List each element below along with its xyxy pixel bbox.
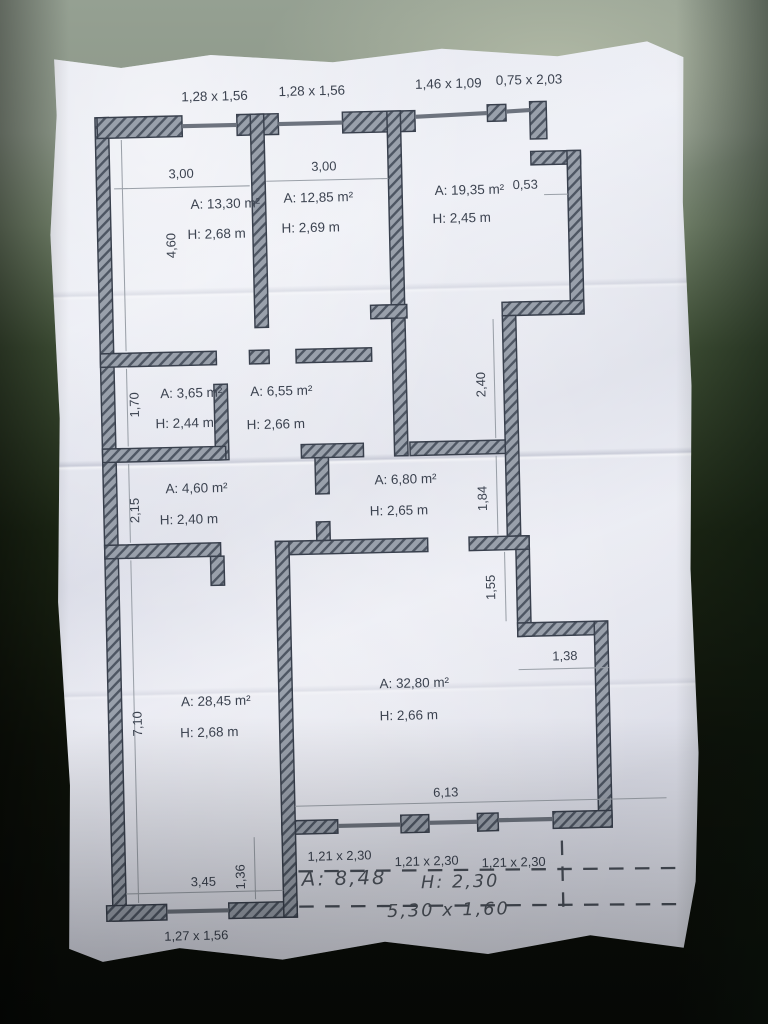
bottom-window-label: 1,21 x 2,30 <box>481 854 545 870</box>
handwritten-balcony-area: A: 8,48 <box>299 866 386 891</box>
dim-7-10: 7,10 <box>130 711 146 737</box>
room-6-80-area: A: 6,80 m² <box>374 471 437 487</box>
room-3-65-height: H: 2,44 m <box>155 415 214 431</box>
room-13-30-area: A: 13,30 m² <box>190 195 260 212</box>
dim-6-13: 6,13 <box>433 784 459 800</box>
room-19-35-area: A: 19,35 m² <box>434 181 504 198</box>
dim-1-84: 1,84 <box>474 486 490 512</box>
photo-of-floor-plan: 1,28 x 1,56 1,28 x 1,56 1,46 x 1,09 0,75… <box>0 0 768 1024</box>
dim-1-38: 1,38 <box>552 648 578 664</box>
room-4-60-height: H: 2,40 m <box>160 511 219 527</box>
room-28-45-area: A: 28,45 m² <box>181 693 251 710</box>
room-19-35-height: H: 2,45 m <box>432 210 491 226</box>
top-window-label: 1,28 x 1,56 <box>181 88 248 105</box>
room-4-60-area: A: 4,60 m² <box>165 480 228 496</box>
room1-width-dim: 3,00 <box>168 166 194 182</box>
room-12-85-area: A: 12,85 m² <box>283 189 353 206</box>
dim-1-55: 1,55 <box>483 575 499 601</box>
room-32-80-height: H: 2,66 m <box>379 707 438 723</box>
room-13-30-height: H: 2,68 m <box>187 226 246 242</box>
room-3-65-area: A: 3,65 m² <box>160 385 223 401</box>
room-6-55-area: A: 6,55 m² <box>250 383 313 399</box>
top-window-label: 1,28 x 1,56 <box>278 83 345 100</box>
dim-1-70: 1,70 <box>126 392 142 418</box>
handwritten-notes: A: 8,48 H: 2,30 5,30 x 1,60 <box>299 863 510 924</box>
room-12-85-height: H: 2,69 m <box>281 219 340 235</box>
room2-width-dim: 3,00 <box>311 158 337 174</box>
dim-1-36: 1,36 <box>232 864 248 890</box>
dim-4-60: 4,60 <box>163 233 179 259</box>
dim-3-45: 3,45 <box>191 874 217 890</box>
paper-sheet: 1,28 x 1,56 1,28 x 1,56 1,46 x 1,09 0,75… <box>44 37 707 969</box>
dim-2-40: 2,40 <box>473 372 489 398</box>
top-door-label: 0,75 x 2,03 <box>496 71 563 88</box>
handwritten-balcony-height: H: 2,30 <box>421 872 500 894</box>
top-opening-labels: 1,28 x 1,56 1,28 x 1,56 1,46 x 1,09 0,75… <box>181 71 563 104</box>
floor-plan-svg: 1,28 x 1,56 1,28 x 1,56 1,46 x 1,09 0,75… <box>44 37 707 969</box>
handwritten-balcony-size: 5,30 x 1,60 <box>387 899 510 922</box>
dim-2-15: 2,15 <box>127 498 143 524</box>
room-6-55-height: H: 2,66 m <box>247 416 306 432</box>
exterior-walls <box>89 100 615 921</box>
room-32-80-area: A: 32,80 m² <box>379 675 449 692</box>
room-28-45-height: H: 2,68 m <box>180 724 239 740</box>
notch-dim: 0,53 <box>512 177 538 193</box>
bottom-window-label: 1,21 x 2,30 <box>394 853 458 869</box>
top-window-label: 1,46 x 1,09 <box>415 75 482 92</box>
bottom-window-label: 1,21 x 2,30 <box>307 847 371 863</box>
bottom-left-window-label: 1,27 x 1,56 <box>164 927 228 943</box>
room-6-80-height: H: 2,65 m <box>370 502 429 518</box>
